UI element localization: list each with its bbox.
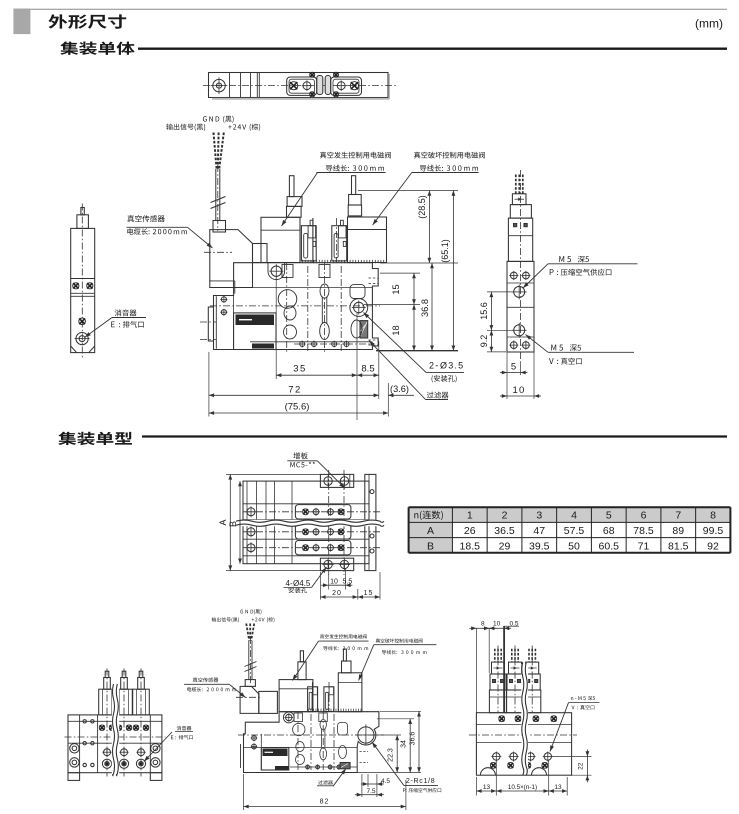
svg-text:34: 34 — [401, 740, 408, 748]
svg-text:3: 3 — [536, 510, 542, 522]
svg-text:8: 8 — [481, 620, 485, 627]
svg-text:10: 10 — [513, 385, 526, 396]
svg-text:36.6: 36.6 — [410, 732, 417, 746]
svg-text:60.5: 60.5 — [599, 540, 620, 552]
svg-text:1: 1 — [467, 510, 473, 522]
svg-text:(75.6): (75.6) — [285, 402, 310, 413]
svg-text:57.5: 57.5 — [564, 525, 585, 537]
svg-text:(28.5): (28.5) — [417, 195, 427, 219]
svg-text:15.6: 15.6 — [479, 302, 489, 320]
svg-text:35: 35 — [293, 364, 307, 375]
svg-text:26: 26 — [464, 525, 476, 537]
svg-text:8.5: 8.5 — [361, 364, 374, 375]
svg-text:29: 29 — [499, 540, 511, 552]
svg-text:2-: 2- — [429, 361, 439, 371]
svg-text:10: 10 — [493, 620, 501, 627]
svg-text:72: 72 — [288, 384, 302, 395]
svg-text:7.5: 7.5 — [366, 788, 375, 795]
svg-text:78.5: 78.5 — [633, 525, 654, 537]
svg-text:18: 18 — [391, 325, 401, 335]
svg-text:9.2: 9.2 — [479, 335, 489, 348]
svg-text:2-Rc1/8: 2-Rc1/8 — [406, 778, 435, 785]
svg-text:13: 13 — [483, 784, 491, 791]
svg-text:(3.6): (3.6) — [390, 384, 409, 394]
svg-text:4-: 4- — [286, 579, 293, 588]
svg-text:89: 89 — [672, 525, 684, 537]
svg-text:92: 92 — [707, 540, 719, 552]
svg-text:A: A — [218, 519, 228, 525]
svg-text:(mm): (mm) — [695, 17, 723, 31]
svg-text:20: 20 — [332, 590, 342, 597]
svg-text:8: 8 — [710, 510, 716, 522]
svg-text:81.5: 81.5 — [668, 540, 689, 552]
svg-text:15: 15 — [364, 590, 374, 597]
svg-text:B: B — [228, 521, 238, 527]
svg-text:5.5: 5.5 — [343, 578, 353, 585]
svg-text:Ø3.5: Ø3.5 — [440, 361, 464, 371]
svg-text:36.5: 36.5 — [494, 525, 515, 537]
svg-text:36.8: 36.8 — [420, 299, 430, 317]
svg-text:13: 13 — [554, 784, 562, 791]
svg-text:71: 71 — [638, 540, 650, 552]
svg-text:(65.1): (65.1) — [440, 239, 450, 263]
svg-text:A: A — [427, 525, 434, 537]
svg-text:47: 47 — [533, 525, 545, 537]
svg-text:10: 10 — [330, 578, 338, 585]
svg-text:6: 6 — [641, 510, 647, 522]
svg-text:82: 82 — [320, 799, 330, 806]
svg-text:10.5×(n-1): 10.5×(n-1) — [508, 784, 537, 791]
svg-text:4: 4 — [571, 510, 577, 522]
svg-text:22: 22 — [578, 762, 585, 770]
svg-text:39.5: 39.5 — [529, 540, 550, 552]
svg-text:7: 7 — [675, 510, 681, 522]
svg-text:5: 5 — [511, 362, 516, 373]
svg-text:2: 2 — [502, 510, 508, 522]
svg-text:50: 50 — [568, 540, 580, 552]
svg-text:68: 68 — [603, 525, 615, 537]
svg-text:4.5: 4.5 — [381, 778, 390, 785]
svg-text:22.3: 22.3 — [388, 748, 395, 762]
svg-text:99.5: 99.5 — [703, 525, 724, 537]
svg-text:18.5: 18.5 — [460, 540, 481, 552]
svg-text:B: B — [427, 540, 434, 552]
svg-text:5: 5 — [606, 510, 612, 522]
svg-text:Ø4.5: Ø4.5 — [293, 579, 311, 588]
svg-text:15: 15 — [391, 284, 401, 294]
